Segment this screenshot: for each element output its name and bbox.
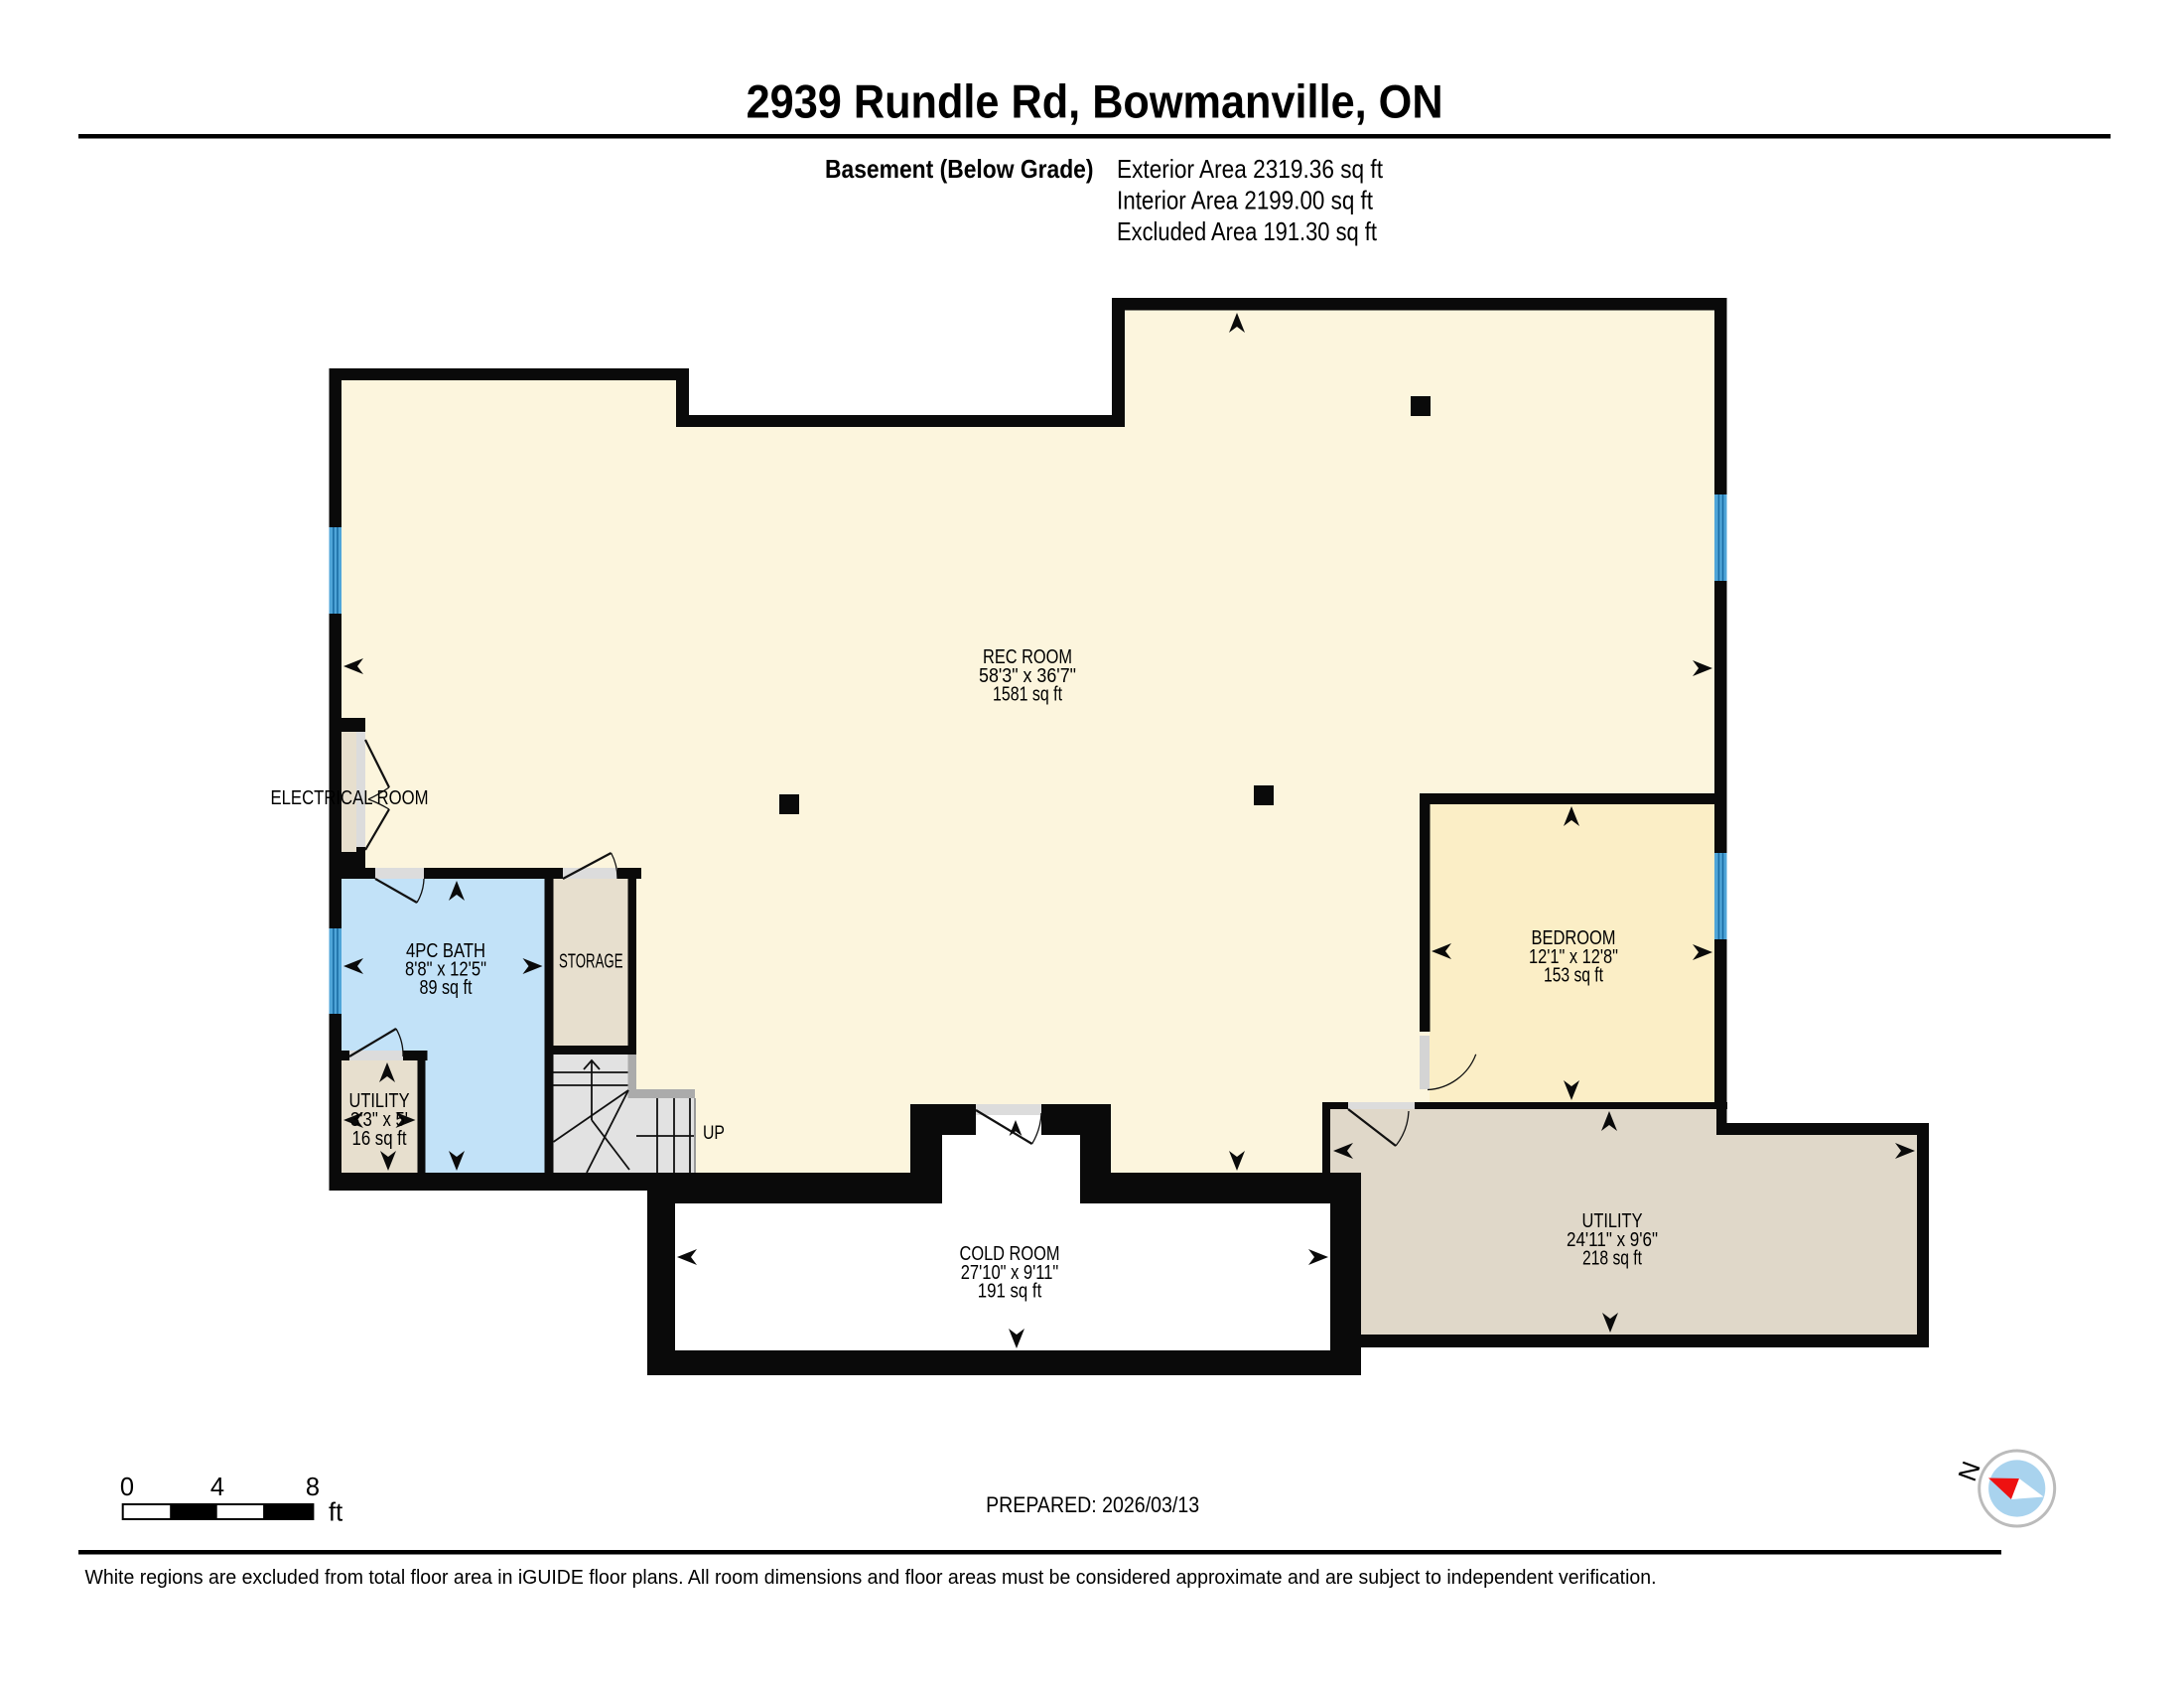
svg-text:191 sq ft: 191 sq ft (978, 1281, 1042, 1303)
svg-text:4: 4 (210, 1474, 224, 1501)
svg-text:ELECTRICAL ROOM: ELECTRICAL ROOM (271, 787, 429, 809)
svg-text:Excluded Area 191.30 sq ft: Excluded Area 191.30 sq ft (1117, 216, 1378, 246)
svg-text:89 sq ft: 89 sq ft (420, 977, 473, 999)
svg-text:218 sq ft: 218 sq ft (1582, 1247, 1642, 1269)
svg-text:Interior Area 2199.00 sq ft: Interior Area 2199.00 sq ft (1117, 186, 1374, 215)
svg-text:16 sq ft: 16 sq ft (352, 1128, 407, 1150)
svg-text:8: 8 (306, 1474, 320, 1501)
svg-text:UP: UP (703, 1123, 725, 1144)
svg-text:0: 0 (120, 1474, 134, 1501)
svg-text:Exterior Area 2319.36 sq ft: Exterior Area 2319.36 sq ft (1117, 154, 1384, 184)
svg-text:153 sq ft: 153 sq ft (1544, 965, 1603, 987)
svg-text:White regions are excluded fro: White regions are excluded from total fl… (85, 1567, 1657, 1589)
svg-text:1581 sq ft: 1581 sq ft (993, 684, 1062, 706)
svg-text:Basement (Below Grade): Basement (Below Grade) (825, 154, 1094, 184)
svg-text:STORAGE: STORAGE (559, 951, 623, 973)
svg-text:2939 Rundle Rd, Bowmanville, O: 2939 Rundle Rd, Bowmanville, ON (747, 75, 1443, 128)
svg-text:ft: ft (329, 1499, 342, 1527)
svg-text:PREPARED: 2026/03/13: PREPARED: 2026/03/13 (986, 1492, 1199, 1517)
